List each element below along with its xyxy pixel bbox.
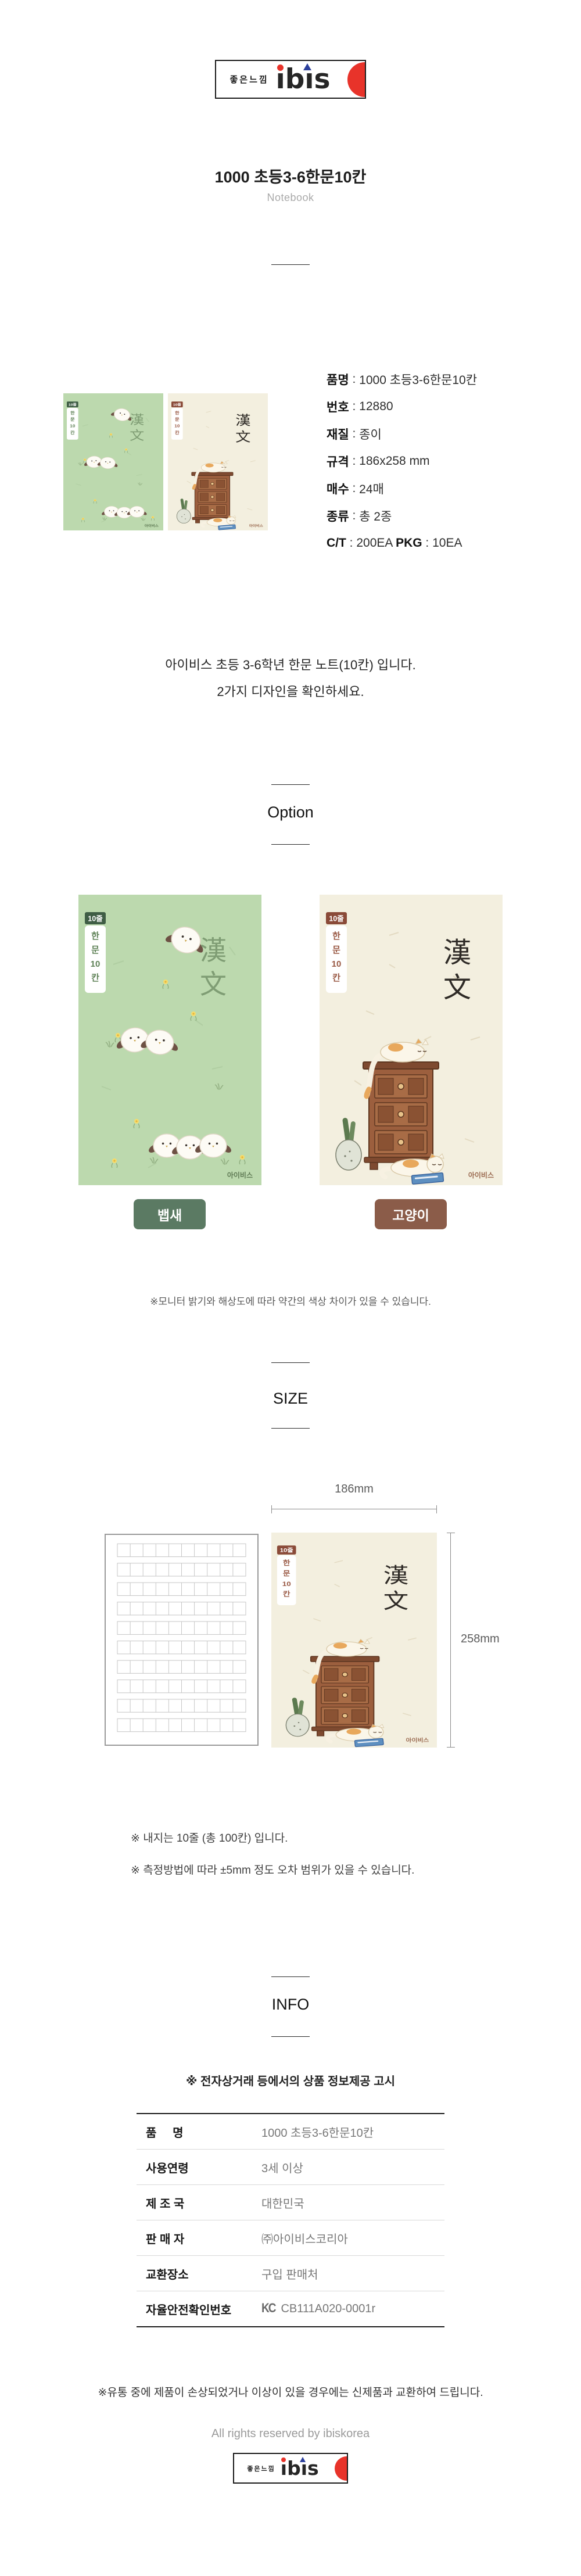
- info-label: 판 매 자: [137, 2230, 261, 2247]
- spec-row-ct: C/T : 200EA PKG : 10EA: [327, 529, 477, 557]
- brand-wordmark: ıbıs: [276, 66, 331, 93]
- spec-label: 품명: [327, 371, 349, 388]
- divider: [271, 1428, 310, 1429]
- red-halfcircle-icon: [347, 62, 366, 97]
- colon: :: [346, 536, 357, 550]
- spec-thumbnail-cat: [168, 393, 268, 530]
- red-dot-icon: [277, 64, 284, 71]
- option-label-bird[interactable]: 뱁새: [134, 1199, 206, 1229]
- colon: :: [349, 454, 360, 468]
- section-title-option: Option: [0, 803, 581, 821]
- red-halfcircle-icon: [335, 2456, 348, 2481]
- colon: :: [422, 536, 433, 550]
- spec-label: 번호: [327, 398, 349, 415]
- brand-slogan: 좋은느낌: [229, 73, 268, 85]
- option-note: ※모니터 밝기와 해상도에 따라 약간의 색상 차이가 있을 수 있습니다.: [0, 1293, 581, 1308]
- info-label: 제 조 국: [137, 2194, 261, 2211]
- colon: :: [349, 509, 360, 523]
- spec-label: C/T: [327, 536, 346, 550]
- spec-value: 총 2종: [359, 507, 392, 525]
- info-value: 3세 이상: [261, 2159, 444, 2176]
- spec-row-name: 품명 : 1000 초등3-6한문10칸: [327, 365, 477, 393]
- spec-value: 200EA: [356, 536, 396, 550]
- divider: [271, 1976, 310, 1977]
- spec-list: 품명 : 1000 초등3-6한문10칸 번호 : 12880 재질 : 종이 …: [327, 365, 477, 557]
- info-label: 자율안전확인번호: [137, 2301, 261, 2317]
- brand-logo-footer: 좋은느낌 ıbıs: [233, 2453, 348, 2484]
- table-row: 판 매 자 ㈜아이비스코리아: [137, 2220, 444, 2255]
- description-line: 아이비스 초등 3-6학년 한문 노트(10칸) 입니다.: [0, 652, 581, 679]
- description-line: 2가지 디자인을 확인하세요.: [0, 679, 581, 705]
- info-value: ㈜아이비스코리아: [261, 2230, 444, 2247]
- spec-label: 종류: [327, 507, 349, 525]
- option-label-cat[interactable]: 고양이: [375, 1199, 447, 1229]
- width-dimension-line: [271, 1509, 437, 1509]
- kc-certification-icon: KC: [261, 2301, 275, 2316]
- footer-note: ※유통 중에 제품이 손상되었거나 이상이 있을 경우에는 신제품과 교환하여 …: [0, 2384, 581, 2399]
- height-dimension-label: 258mm: [461, 1633, 500, 1646]
- brand-logo: 좋은느낌 ıbıs: [215, 60, 366, 99]
- spec-value: 10EA: [432, 536, 462, 550]
- inner-page-image: [105, 1534, 259, 1746]
- divider: [271, 1362, 310, 1363]
- spec-value: 24매: [359, 480, 384, 497]
- spec-value: 186x258 mm: [359, 454, 429, 468]
- size-note-line: ※ 내지는 10줄 (총 100칸) 입니다.: [131, 1829, 414, 1845]
- spec-row-material: 재질 : 종이: [327, 420, 477, 447]
- table-row: 품 명 1000 초등3-6한문10칸: [137, 2114, 444, 2149]
- table-row: 자율안전확인번호 KC CB111A020-0001r: [137, 2291, 444, 2326]
- option-cover-bird: [78, 895, 261, 1185]
- section-title-size: SIZE: [0, 1390, 581, 1408]
- spec-value: 12880: [359, 400, 393, 414]
- divider: [271, 264, 310, 265]
- option-cover-cat: [320, 895, 503, 1185]
- colon: :: [349, 372, 360, 386]
- spec-thumbnail-bird: [63, 393, 163, 530]
- spec-value: 1000 초등3-6한문10칸: [359, 371, 477, 388]
- spec-label: 규격: [327, 453, 349, 470]
- red-dot-icon: [281, 2457, 286, 2462]
- size-notes: ※ 내지는 10줄 (총 100칸) 입니다. ※ 측정방법에 따라 ±5mm …: [131, 1829, 414, 1893]
- info-value: KC CB111A020-0001r: [261, 2302, 444, 2316]
- spec-label: 재질: [327, 425, 349, 443]
- colon: :: [349, 400, 360, 414]
- divider: [271, 784, 310, 785]
- table-row: 사용연령 3세 이상: [137, 2149, 444, 2184]
- brand-wordmark: ıbıs: [281, 2459, 319, 2478]
- table-row: 제 조 국 대한민국: [137, 2184, 444, 2220]
- certification-number: CB111A020-0001r: [281, 2302, 375, 2316]
- spec-label: PKG: [396, 536, 422, 550]
- height-dimension-line: [450, 1533, 451, 1748]
- section-title-info: INFO: [0, 1996, 581, 2014]
- product-description: 아이비스 초등 3-6학년 한문 노트(10칸) 입니다. 2가지 디자인을 확…: [0, 652, 581, 705]
- info-table: 품 명 1000 초등3-6한문10칸 사용연령 3세 이상 제 조 국 대한민…: [137, 2113, 444, 2327]
- divider: [271, 2036, 310, 2037]
- spec-row-size: 규격 : 186x258 mm: [327, 447, 477, 475]
- info-notice: ※ 전자상거래 등에서의 상품 정보제공 고시: [0, 2072, 581, 2089]
- page-subtitle: Notebook: [0, 192, 581, 204]
- spec-label: 매수: [327, 480, 349, 497]
- size-note-line: ※ 측정방법에 따라 ±5mm 정도 오차 범위가 있을 수 있습니다.: [131, 1861, 414, 1877]
- info-label: 교환장소: [137, 2265, 261, 2282]
- spec-row-kinds: 종류 : 총 2종: [327, 502, 477, 529]
- colon: :: [349, 482, 360, 496]
- info-label: 품 명: [137, 2123, 261, 2140]
- blue-triangle-icon: [303, 63, 311, 70]
- footer-rights: All rights reserved by ibiskorea: [0, 2427, 581, 2441]
- info-value: 대한민국: [261, 2194, 444, 2211]
- info-value: 구입 판매처: [261, 2265, 444, 2282]
- info-label: 사용연령: [137, 2159, 261, 2176]
- blue-triangle-icon: [300, 2457, 306, 2462]
- width-dimension-label: 186mm: [271, 1483, 437, 1496]
- info-value: 1000 초등3-6한문10칸: [261, 2123, 444, 2140]
- page-title: 1000 초등3-6한문10칸: [0, 164, 581, 187]
- divider: [271, 844, 310, 845]
- table-row: 교환장소 구입 판매처: [137, 2255, 444, 2291]
- brand-slogan: 좋은느낌: [247, 2464, 275, 2473]
- product-detail-page: 좋은느낌 ıbıs 1000 초등3-6한문10칸 Notebook 품명 : …: [0, 0, 581, 2576]
- spec-row-number: 번호 : 12880: [327, 393, 477, 420]
- colon: :: [349, 427, 360, 441]
- spec-value: 종이: [359, 425, 382, 443]
- size-cover-image: [271, 1533, 437, 1748]
- spec-row-sheets: 매수 : 24매: [327, 475, 477, 502]
